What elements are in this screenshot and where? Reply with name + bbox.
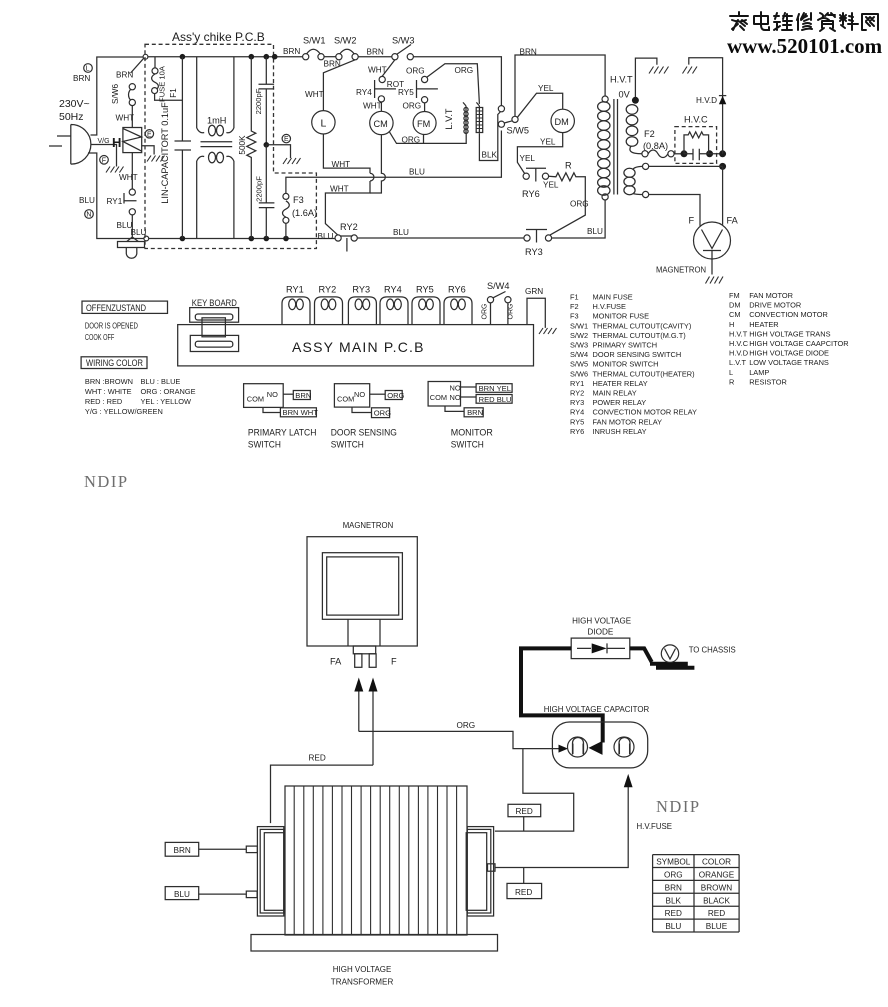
svg-text:ORG: ORG — [455, 66, 474, 75]
svg-text:COM: COM — [247, 395, 264, 404]
svg-text:BLU: BLU — [79, 196, 95, 205]
svg-text:H: H — [729, 320, 734, 329]
svg-text:WHT: WHT — [119, 173, 138, 182]
svg-text:H.V.D: H.V.D — [696, 96, 717, 105]
svg-text:S/W5: S/W5 — [570, 360, 588, 369]
svg-text:F: F — [689, 216, 695, 226]
svg-text:S/W2: S/W2 — [570, 331, 588, 340]
svg-text:BLACK: BLACK — [703, 896, 730, 905]
svg-text:Y/G : YELLOW/GREEN: Y/G : YELLOW/GREEN — [85, 407, 163, 416]
svg-text:BLU: BLU — [665, 922, 681, 931]
svg-text:RED: RED — [516, 807, 533, 816]
svg-text:ORG: ORG — [457, 721, 476, 730]
svg-text:L.V.T: L.V.T — [729, 358, 746, 367]
svg-text:RY2: RY2 — [570, 389, 584, 398]
svg-text:L.V.T: L.V.T — [444, 108, 454, 129]
svg-text:LAMP: LAMP — [749, 368, 769, 377]
svg-text:BLU : BLUE: BLU : BLUE — [141, 377, 181, 386]
svg-text:S/W3: S/W3 — [392, 36, 414, 46]
svg-text:N: N — [86, 212, 91, 219]
svg-text:BRN: BRN — [116, 71, 133, 80]
svg-text:BLK: BLK — [666, 896, 682, 905]
svg-text:RY4: RY4 — [570, 408, 584, 417]
svg-text:E: E — [284, 136, 289, 143]
svg-text:H.V.C: H.V.C — [729, 339, 749, 348]
svg-text:ASSY MAIN P.C.B: ASSY MAIN P.C.B — [292, 339, 425, 355]
svg-text:RED : RED: RED : RED — [85, 397, 122, 406]
svg-text:BLU: BLU — [318, 232, 334, 241]
svg-text:THERMAL CUTOUT(HEATER): THERMAL CUTOUT(HEATER) — [593, 369, 695, 378]
svg-text:E: E — [147, 131, 152, 138]
svg-text:DIODE: DIODE — [587, 628, 614, 637]
svg-text:ORG: ORG — [570, 200, 589, 209]
svg-text:BRN: BRN — [367, 48, 384, 57]
svg-text:H.V.D: H.V.D — [729, 349, 748, 358]
svg-text:DOOR IS OPENED: DOOR IS OPENED — [85, 321, 138, 331]
svg-text:F: F — [102, 157, 106, 164]
svg-text:RED: RED — [708, 909, 725, 918]
svg-text:RESISTOR: RESISTOR — [749, 377, 787, 386]
svg-text:RED BLU: RED BLU — [479, 395, 512, 404]
svg-text:BRN: BRN — [295, 391, 311, 400]
svg-text:FA: FA — [727, 216, 739, 226]
svg-text:ORG: ORG — [402, 136, 421, 145]
svg-text:H.V.C: H.V.C — [684, 115, 708, 125]
svg-text:(0.8A): (0.8A) — [643, 141, 668, 151]
svg-text:YEL: YEL — [543, 181, 559, 190]
svg-text:OFFENZUSTAND: OFFENZUSTAND — [86, 303, 146, 313]
svg-text:(1.6A): (1.6A) — [292, 208, 317, 218]
svg-text:2200pF: 2200pF — [254, 88, 263, 114]
svg-text:50Hz: 50Hz — [59, 111, 84, 123]
svg-text:S/W6: S/W6 — [570, 369, 588, 378]
svg-text:FM: FM — [417, 119, 430, 129]
svg-text:S/W4: S/W4 — [487, 281, 509, 291]
svg-text:MAIN RELAY: MAIN RELAY — [593, 389, 637, 398]
svg-text:RY6: RY6 — [522, 189, 540, 199]
svg-text:RY5: RY5 — [570, 417, 584, 426]
svg-text:MAGNETRON: MAGNETRON — [656, 266, 706, 275]
svg-text:BLU: BLU — [587, 227, 603, 236]
svg-text:F: F — [391, 657, 397, 667]
svg-text:MAGNETRON: MAGNETRON — [343, 521, 394, 530]
svg-text:YEL: YEL — [538, 84, 554, 93]
svg-text:NO: NO — [267, 390, 278, 399]
svg-text:V/G: V/G — [98, 138, 110, 145]
svg-text:H.V.FUSE: H.V.FUSE — [593, 302, 626, 311]
svg-text:POWER RELAY: POWER RELAY — [593, 398, 647, 407]
svg-text:NDIP: NDIP — [656, 797, 701, 816]
svg-text:BLU: BLU — [409, 168, 425, 177]
svg-text:HEATER RELAY: HEATER RELAY — [593, 379, 648, 388]
svg-text:FUSE 10A: FUSE 10A — [158, 65, 167, 102]
svg-text:HEATER: HEATER — [749, 320, 778, 329]
svg-text:COM: COM — [430, 393, 447, 402]
svg-text:H.V.T: H.V.T — [729, 329, 748, 338]
svg-text:YEL: YEL — [540, 138, 556, 147]
svg-text:S/W4: S/W4 — [570, 350, 588, 359]
svg-text:BLU: BLU — [131, 228, 147, 237]
svg-text:MONITOR FUSE: MONITOR FUSE — [593, 312, 650, 321]
svg-text:RY2: RY2 — [340, 222, 358, 232]
svg-text:INRUSH RELAY: INRUSH RELAY — [593, 427, 647, 436]
svg-text:BRN: BRN — [665, 883, 682, 892]
svg-text:RY4: RY4 — [384, 285, 402, 295]
svg-text:230V~: 230V~ — [59, 98, 90, 110]
svg-text:PRIMARY LATCH: PRIMARY LATCH — [248, 428, 317, 438]
svg-text:GRN: GRN — [525, 287, 543, 296]
svg-text:WHT: WHT — [330, 185, 349, 194]
svg-text:RED: RED — [515, 888, 532, 897]
svg-text:BRN: BRN — [174, 846, 191, 855]
svg-text:R: R — [729, 377, 734, 386]
svg-text:RED: RED — [309, 754, 326, 763]
svg-text:RY3: RY3 — [570, 398, 584, 407]
svg-text:CONVECTION MOTOR RELAY: CONVECTION MOTOR RELAY — [593, 408, 698, 417]
svg-text:RY6: RY6 — [448, 285, 466, 295]
svg-text:FAN MOTOR: FAN MOTOR — [749, 291, 793, 300]
svg-text:KEY BOARD: KEY BOARD — [192, 298, 237, 308]
svg-text:MAIN FUSE: MAIN FUSE — [593, 293, 633, 302]
svg-text:BLU: BLU — [393, 228, 409, 237]
svg-text:RY1: RY1 — [570, 379, 584, 388]
svg-text:S/W3: S/W3 — [570, 341, 588, 350]
svg-text:F1: F1 — [570, 293, 579, 302]
svg-text:HIGH VOLTAGE TRANS: HIGH VOLTAGE TRANS — [749, 329, 830, 338]
svg-text:MONITOR: MONITOR — [451, 428, 493, 438]
svg-text:1mH: 1mH — [207, 116, 226, 126]
svg-text:YEL: YEL — [520, 154, 536, 163]
svg-text:F1: F1 — [169, 88, 178, 98]
svg-text:ORANGE: ORANGE — [699, 871, 735, 880]
svg-text:RY1: RY1 — [107, 197, 123, 206]
svg-text:ORG: ORG — [387, 391, 404, 400]
svg-text:BRN WHT: BRN WHT — [283, 408, 319, 417]
svg-text:F3: F3 — [570, 312, 579, 321]
svg-text:BLU: BLU — [174, 890, 190, 899]
svg-text:ORG: ORG — [403, 102, 422, 111]
svg-text:ORG: ORG — [508, 304, 515, 320]
svg-text:RY5: RY5 — [416, 285, 434, 295]
svg-text:COLOR: COLOR — [702, 858, 731, 867]
svg-text:THERMAL CUTOUT(CAVITY): THERMAL CUTOUT(CAVITY) — [593, 321, 692, 330]
svg-text:SWITCH: SWITCH — [451, 440, 484, 450]
svg-text:L: L — [729, 368, 733, 377]
svg-text:BRN: BRN — [73, 74, 90, 83]
svg-text:H: H — [112, 135, 121, 150]
svg-text:BLUE: BLUE — [706, 922, 728, 931]
svg-text:DM: DM — [555, 117, 569, 127]
svg-text:BRN YEL: BRN YEL — [479, 384, 511, 393]
svg-text:500K: 500K — [238, 135, 247, 155]
svg-text:THERMAL CUTOUT(M.G.T): THERMAL CUTOUT(M.G.T) — [593, 331, 686, 340]
svg-text:DRIVE MOTOR: DRIVE MOTOR — [749, 301, 801, 310]
svg-text:RY4: RY4 — [356, 88, 372, 97]
svg-text:RY2: RY2 — [319, 285, 337, 295]
svg-text:HIGH VOLTAGE: HIGH VOLTAGE — [333, 965, 392, 974]
svg-text:HIGH VOLTAGE: HIGH VOLTAGE — [572, 617, 632, 626]
svg-text:HIGH VOLTAGE CAAPCITOR: HIGH VOLTAGE CAAPCITOR — [749, 339, 848, 348]
svg-text:HIGH VOLTAGE CAPACITOR: HIGH VOLTAGE CAPACITOR — [544, 705, 650, 714]
svg-text:CM: CM — [729, 310, 741, 319]
svg-text:WHT: WHT — [332, 160, 351, 169]
svg-text:RY3: RY3 — [525, 247, 543, 257]
svg-text:ORG: ORG — [664, 871, 683, 880]
svg-text:FA: FA — [330, 657, 342, 667]
svg-text:SWITCH: SWITCH — [331, 440, 364, 450]
svg-text:LOW VOLTAGE TRANS: LOW VOLTAGE TRANS — [749, 358, 829, 367]
svg-text:CONVECTION MOTOR: CONVECTION MOTOR — [749, 310, 828, 319]
svg-text:DOOR SENSING SWITCH: DOOR SENSING SWITCH — [593, 350, 682, 359]
svg-text:L: L — [321, 118, 327, 130]
svg-text:H.V.T: H.V.T — [610, 75, 633, 85]
svg-text:2200pF: 2200pF — [255, 176, 264, 202]
svg-text:S/W6: S/W6 — [111, 84, 120, 104]
svg-text:RY6: RY6 — [570, 427, 584, 436]
svg-text:SWITCH: SWITCH — [248, 440, 281, 450]
svg-text:YEL : YELLOW: YEL : YELLOW — [141, 397, 192, 406]
svg-text:WHT : WHITE: WHT : WHITE — [85, 387, 132, 396]
svg-text:L: L — [86, 66, 90, 73]
svg-text:NO: NO — [354, 390, 365, 399]
svg-text:S/W1: S/W1 — [303, 36, 325, 46]
svg-text:ORG : ORANGE: ORG : ORANGE — [141, 387, 196, 396]
svg-text:S/W2: S/W2 — [334, 36, 356, 46]
svg-text:COM: COM — [337, 395, 354, 404]
svg-text:S/W1: S/W1 — [570, 321, 588, 330]
svg-text:HIGH VOLTAGE DIODE: HIGH VOLTAGE DIODE — [749, 349, 829, 358]
svg-text:SYMBOL: SYMBOL — [656, 858, 691, 867]
svg-text:PRIMARY SWITCH: PRIMARY SWITCH — [593, 341, 658, 350]
svg-text:RY5: RY5 — [398, 88, 414, 97]
svg-text:RY1: RY1 — [286, 285, 304, 295]
svg-text:BRN: BRN — [467, 408, 483, 417]
svg-text:LIN-CAPACITORT 0.1uF: LIN-CAPACITORT 0.1uF — [160, 102, 170, 204]
svg-text:WHT: WHT — [116, 114, 135, 123]
svg-text:COOK OFF: COOK OFF — [85, 332, 115, 342]
svg-text:ORG: ORG — [374, 408, 391, 417]
svg-text:NDIP: NDIP — [84, 472, 129, 491]
svg-text:F2: F2 — [570, 302, 579, 311]
svg-text:F3: F3 — [293, 195, 304, 205]
svg-text:RY3: RY3 — [352, 285, 370, 295]
svg-text:ORG: ORG — [482, 304, 489, 320]
svg-text:CM: CM — [374, 119, 388, 129]
svg-text:NO: NO — [450, 393, 461, 402]
svg-text:www.520101.com: www.520101.com — [727, 34, 883, 58]
svg-text:FM: FM — [729, 291, 740, 300]
svg-text:BROWN: BROWN — [701, 883, 732, 892]
svg-text:WHT: WHT — [305, 90, 324, 99]
svg-text:RED: RED — [665, 909, 682, 918]
svg-text:NO: NO — [450, 384, 461, 393]
svg-text:BRN :BROWN: BRN :BROWN — [85, 377, 133, 386]
svg-text:TO CHASSIS: TO CHASSIS — [689, 646, 737, 655]
svg-text:0V: 0V — [619, 90, 631, 100]
svg-text:BRN: BRN — [520, 47, 537, 56]
svg-text:DOOR SENSING: DOOR SENSING — [331, 428, 397, 438]
svg-text:S/W5: S/W5 — [507, 126, 529, 136]
svg-text:H.V.FUSE: H.V.FUSE — [637, 822, 673, 831]
svg-text:F2: F2 — [644, 129, 655, 139]
svg-text:WIRING COLOR: WIRING COLOR — [86, 358, 143, 368]
svg-text:FAN MOTOR RELAY: FAN MOTOR RELAY — [593, 417, 663, 426]
svg-text:MONITOR SWITCH: MONITOR SWITCH — [593, 360, 659, 369]
svg-text:BRN: BRN — [283, 47, 300, 56]
svg-text:ORG: ORG — [406, 67, 425, 76]
svg-text:BLK: BLK — [482, 151, 498, 160]
svg-text:DM: DM — [729, 301, 741, 310]
svg-text:R: R — [565, 161, 572, 171]
svg-text:WHT: WHT — [363, 102, 382, 111]
svg-text:Ass'y chike P.C.B: Ass'y chike P.C.B — [172, 30, 265, 44]
svg-text:TRANSFORMER: TRANSFORMER — [331, 978, 394, 987]
